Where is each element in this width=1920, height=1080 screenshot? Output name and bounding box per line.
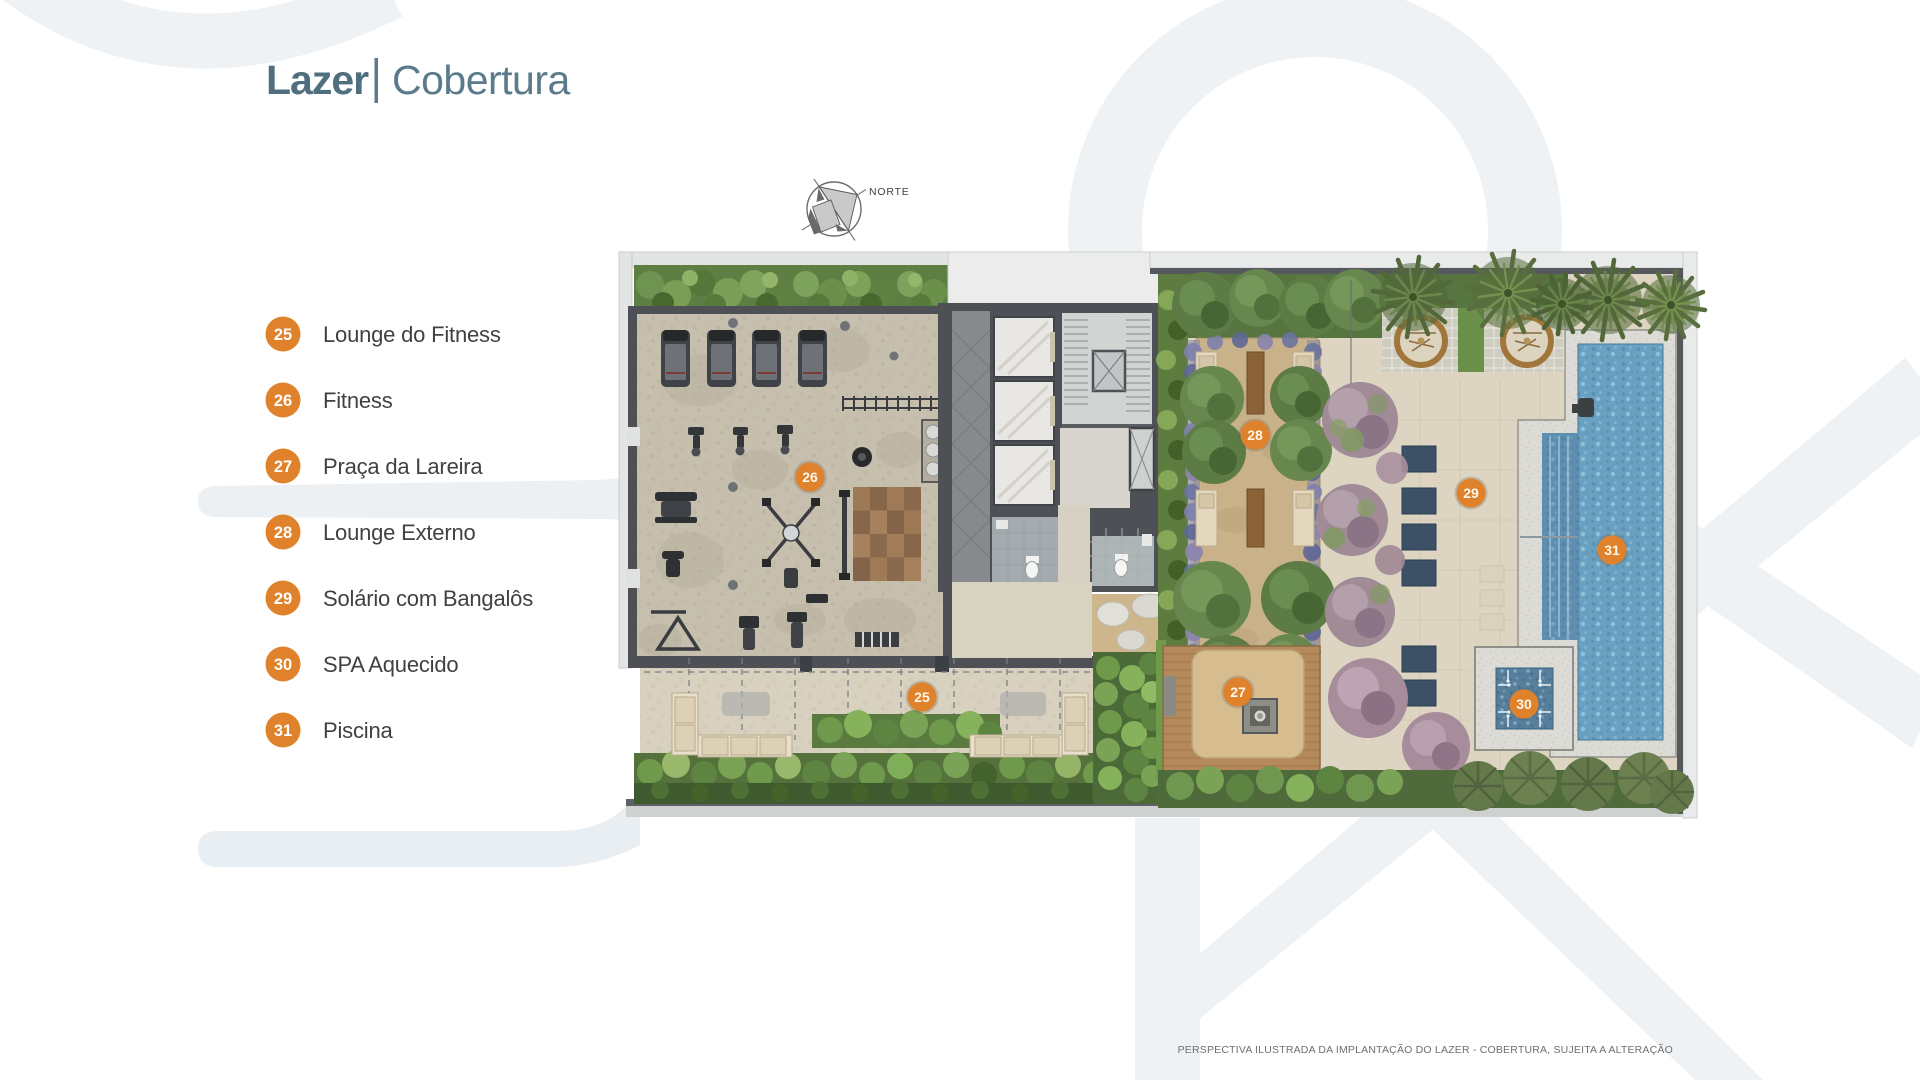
svg-text:29: 29	[274, 590, 292, 608]
svg-text:29: 29	[1463, 485, 1479, 501]
svg-text:Solário com Bangalôs: Solário com Bangalôs	[323, 586, 533, 611]
svg-text:25: 25	[274, 326, 292, 344]
svg-text:Praça da Lareira: Praça da Lareira	[323, 454, 483, 479]
svg-text:Piscina: Piscina	[323, 718, 393, 743]
svg-text:31: 31	[1604, 542, 1620, 558]
svg-text:Fitness: Fitness	[323, 388, 393, 413]
svg-text:27: 27	[1230, 684, 1246, 700]
svg-text:28: 28	[274, 524, 292, 542]
svg-text:31: 31	[274, 722, 292, 740]
svg-text:25: 25	[914, 689, 930, 705]
svg-text:26: 26	[802, 469, 818, 485]
svg-text:Lounge Externo: Lounge Externo	[323, 520, 476, 545]
svg-text:30: 30	[274, 656, 292, 674]
svg-text:26: 26	[274, 392, 292, 410]
svg-text:27: 27	[274, 458, 292, 476]
svg-text:28: 28	[1247, 427, 1263, 443]
svg-text:NORTE: NORTE	[869, 186, 910, 198]
svg-text:30: 30	[1516, 696, 1532, 712]
svg-text:SPA Aquecido: SPA Aquecido	[323, 652, 458, 677]
svg-text:PERSPECTIVA ILUSTRADA DA IMPLA: PERSPECTIVA ILUSTRADA DA IMPLANTAÇÃO DO …	[1178, 1043, 1673, 1056]
svg-text:Lounge do Fitness: Lounge do Fitness	[323, 322, 501, 347]
svg-text:Lazer: Lazer	[266, 57, 369, 103]
svg-text:Cobertura: Cobertura	[392, 57, 571, 103]
